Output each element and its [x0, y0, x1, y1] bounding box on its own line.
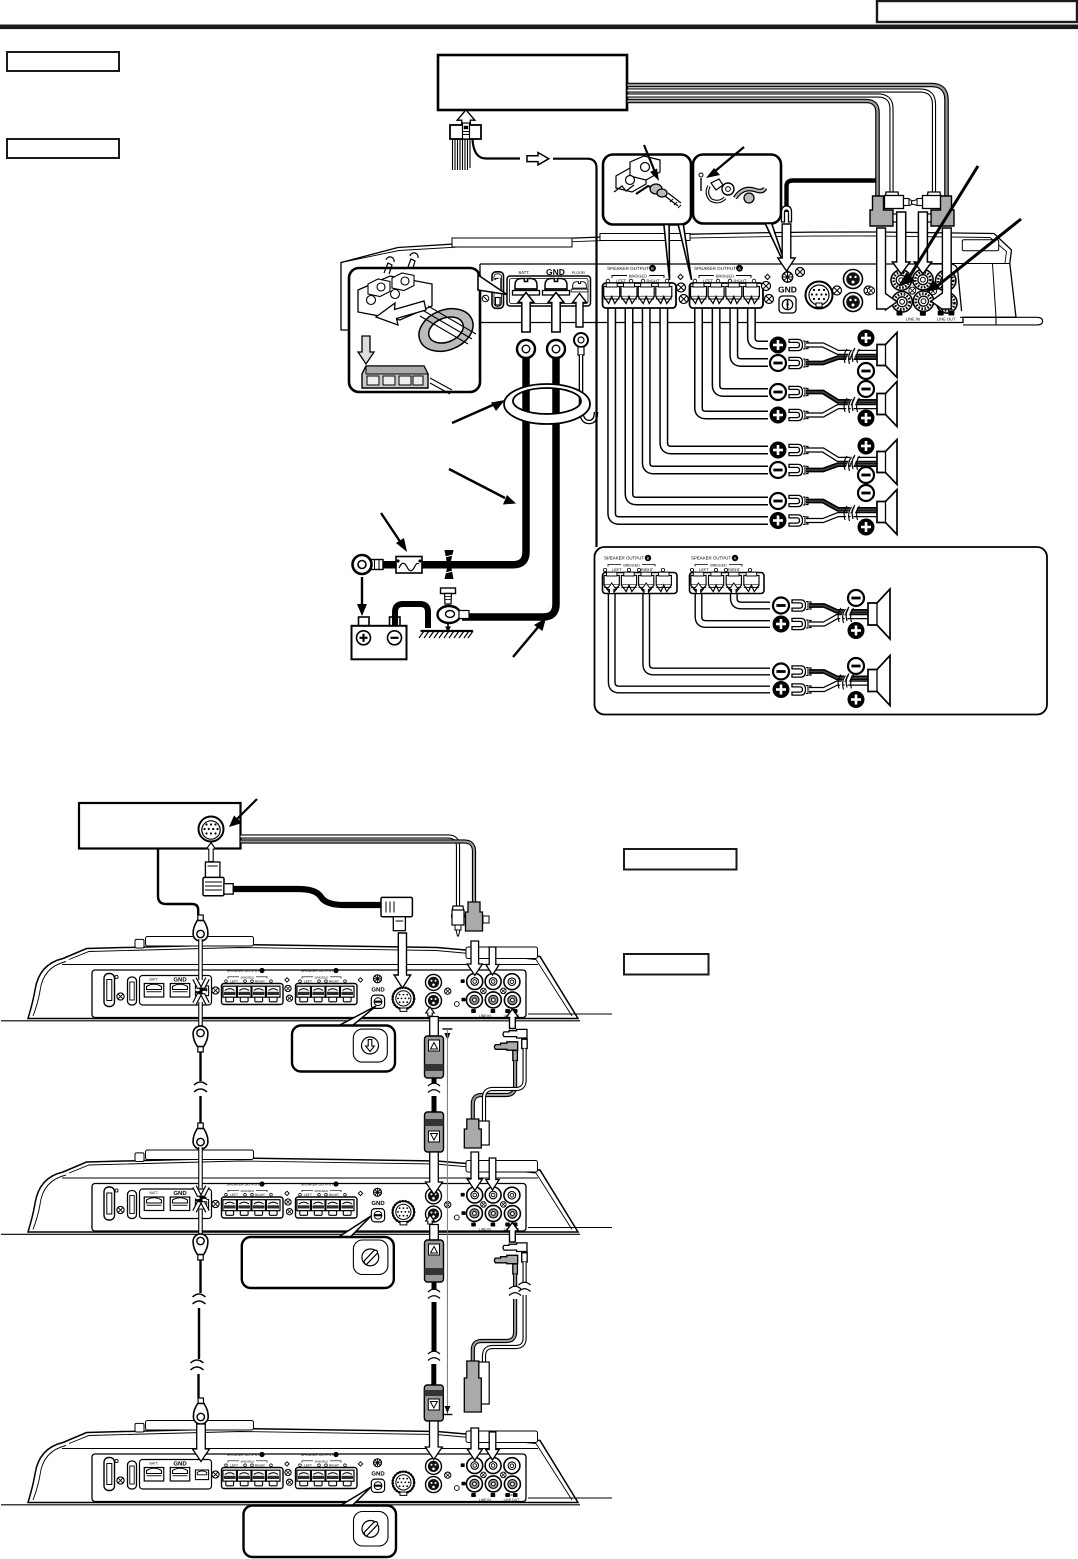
- svg-text:FLOOR: FLOOR: [572, 271, 585, 275]
- svg-text:LEFT: LEFT: [699, 567, 709, 572]
- svg-text:SPEAKER OUTPUT: SPEAKER OUTPUT: [604, 556, 644, 561]
- svg-text:BRIDGED: BRIDGED: [623, 564, 640, 568]
- svg-text:B: B: [651, 266, 654, 271]
- svg-text:LINE OUT: LINE OUT: [937, 317, 956, 322]
- svg-text:SPEAKER OUTPUT: SPEAKER OUTPUT: [691, 556, 731, 561]
- svg-text:GND: GND: [778, 285, 797, 295]
- svg-text:LEFT: LEFT: [612, 567, 622, 572]
- svg-text:BRIDGED: BRIDGED: [710, 564, 727, 568]
- svg-text:GND: GND: [546, 267, 565, 277]
- svg-text:A: A: [734, 557, 737, 561]
- svg-text:RIGHT: RIGHT: [728, 567, 741, 572]
- svg-text:BRIDGED: BRIDGED: [629, 274, 647, 279]
- svg-text:B: B: [647, 557, 650, 561]
- svg-text:RIGHT: RIGHT: [641, 567, 654, 572]
- svg-text:A: A: [738, 266, 741, 271]
- svg-text:LINE IN: LINE IN: [906, 316, 920, 321]
- svg-text:SPEAKER OUTPUT: SPEAKER OUTPUT: [694, 266, 736, 271]
- svg-text:BRIDGED: BRIDGED: [716, 274, 734, 279]
- svg-text:SPEAKER OUTPUT: SPEAKER OUTPUT: [607, 266, 649, 271]
- svg-text:BATT.: BATT.: [518, 270, 529, 275]
